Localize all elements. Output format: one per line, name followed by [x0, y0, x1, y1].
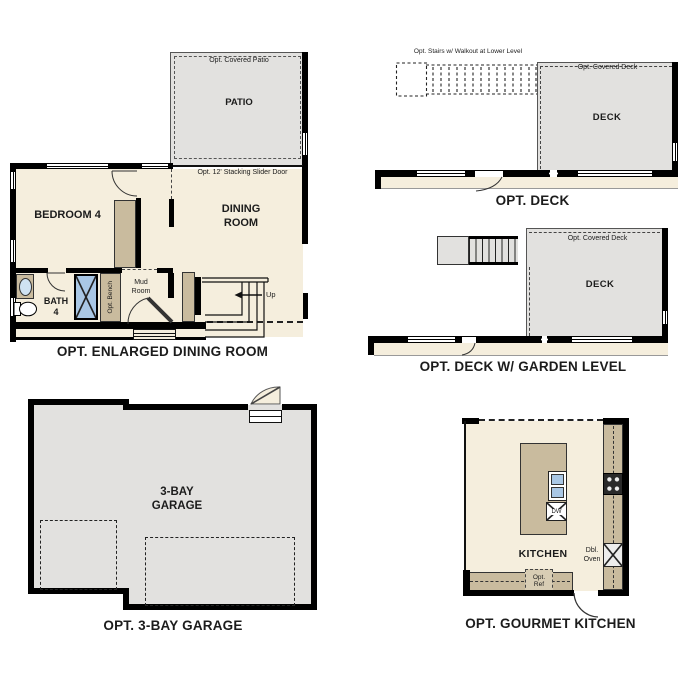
dishwasher-label: DW: [551, 509, 563, 515]
plan-caption: OPT. GOURMET KITCHEN: [458, 616, 643, 633]
dishwasher: DW: [546, 502, 567, 521]
dbl-oven-label: Dbl. Oven: [577, 547, 607, 565]
kitchen-door-arc: [573, 592, 600, 619]
sink-basin: [551, 487, 564, 498]
opt-ref-label: Opt. Ref: [533, 574, 545, 589]
open-to-dashed: [479, 419, 603, 421]
floorplan-sheet: Opt. Covered Patio PATIO Opt. 12' Stacki…: [0, 0, 687, 687]
wall-corner: [463, 570, 470, 596]
sink-basin: [551, 474, 564, 485]
plan-gourmet-kitchen: DW Opt. Ref KITCHEN Dbl. Oven OPT. GOURM…: [0, 0, 687, 687]
kitchen-right-wall: [623, 421, 629, 596]
kitchen-left-wall: [464, 421, 466, 591]
kitchen-bottom-wall: [463, 590, 574, 596]
cooktop-icon: [603, 473, 623, 495]
kitchen-bottom-wall: [598, 590, 629, 596]
counter-dashed-line: [470, 581, 570, 582]
